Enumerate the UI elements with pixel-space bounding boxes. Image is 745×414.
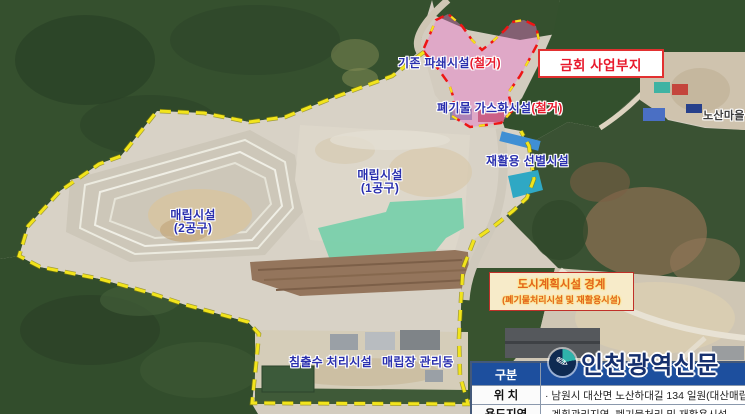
label-landfill-1-name: 매립시설 (357, 168, 402, 182)
label-landfill-1: 매립시설 (1공구) (350, 169, 410, 195)
label-management: 매립장 관리동 (382, 356, 454, 369)
table-row-location-value: · 남원시 대산면 노산하대길 134 일원(대산매립장 내 (541, 386, 745, 405)
urban-planning-boundary-callout: 도시계획시설 경계 (폐기물처리시설 및 재활용시설) (489, 272, 634, 311)
label-landfill-2: 매립시설 (2공구) (163, 209, 223, 235)
boundary-callout-subtitle: (폐기물처리시설 및 재활용시설) (492, 293, 631, 306)
table-row-zoning-label: 용도지역 (471, 405, 541, 414)
table-row-location: 위 치 · 남원시 대산면 노산하대길 134 일원(대산매립장 내 (471, 386, 745, 405)
table-row-location-label: 위 치 (471, 386, 541, 405)
label-gasification-demolish: (철거) (531, 101, 562, 115)
label-existing-crusher: 기존 파쇄시설(철거) (398, 57, 501, 70)
project-site-callout-text: 금회 사업부지 (560, 54, 642, 74)
label-leachate: 침출수 처리시설 (289, 356, 372, 369)
watermark-text: 인천광역신문 (581, 345, 719, 380)
label-existing-crusher-demolish: (철거) (470, 56, 501, 70)
boundary-callout-title: 도시계획시설 경계 (492, 276, 631, 292)
label-landfill-1-section: (1공구) (361, 181, 399, 195)
table-row-zoning: 용도지역 · 계획관리지역, 폐기물처리 및 재활용시설 (471, 405, 745, 414)
label-village: 노산마을 (703, 111, 745, 123)
label-landfill-2-name: 매립시설 (170, 208, 215, 222)
label-gasification: 폐기물 가스화시설(철거) (437, 102, 563, 115)
annotated-aerial-map: 기존 파쇄시설(철거) 폐기물 가스화시설(철거) 재활용 선별시설 매립시설 … (0, 0, 745, 414)
label-gasification-name: 폐기물 가스화시설 (437, 101, 531, 115)
label-existing-crusher-name: 기존 파쇄시설 (398, 56, 470, 70)
pen-nib-icon: ✎ (549, 349, 576, 376)
table-header-category: 구분 (471, 362, 541, 386)
label-landfill-2-section: (2공구) (174, 221, 212, 235)
project-site-callout: 금회 사업부지 (538, 49, 664, 78)
label-recycling: 재활용 선별시설 (486, 155, 569, 168)
table-row-zoning-value: · 계획관리지역, 폐기물처리 및 재활용시설 (541, 405, 745, 414)
newspaper-watermark: ✎ 인천광역신문 (549, 345, 719, 380)
